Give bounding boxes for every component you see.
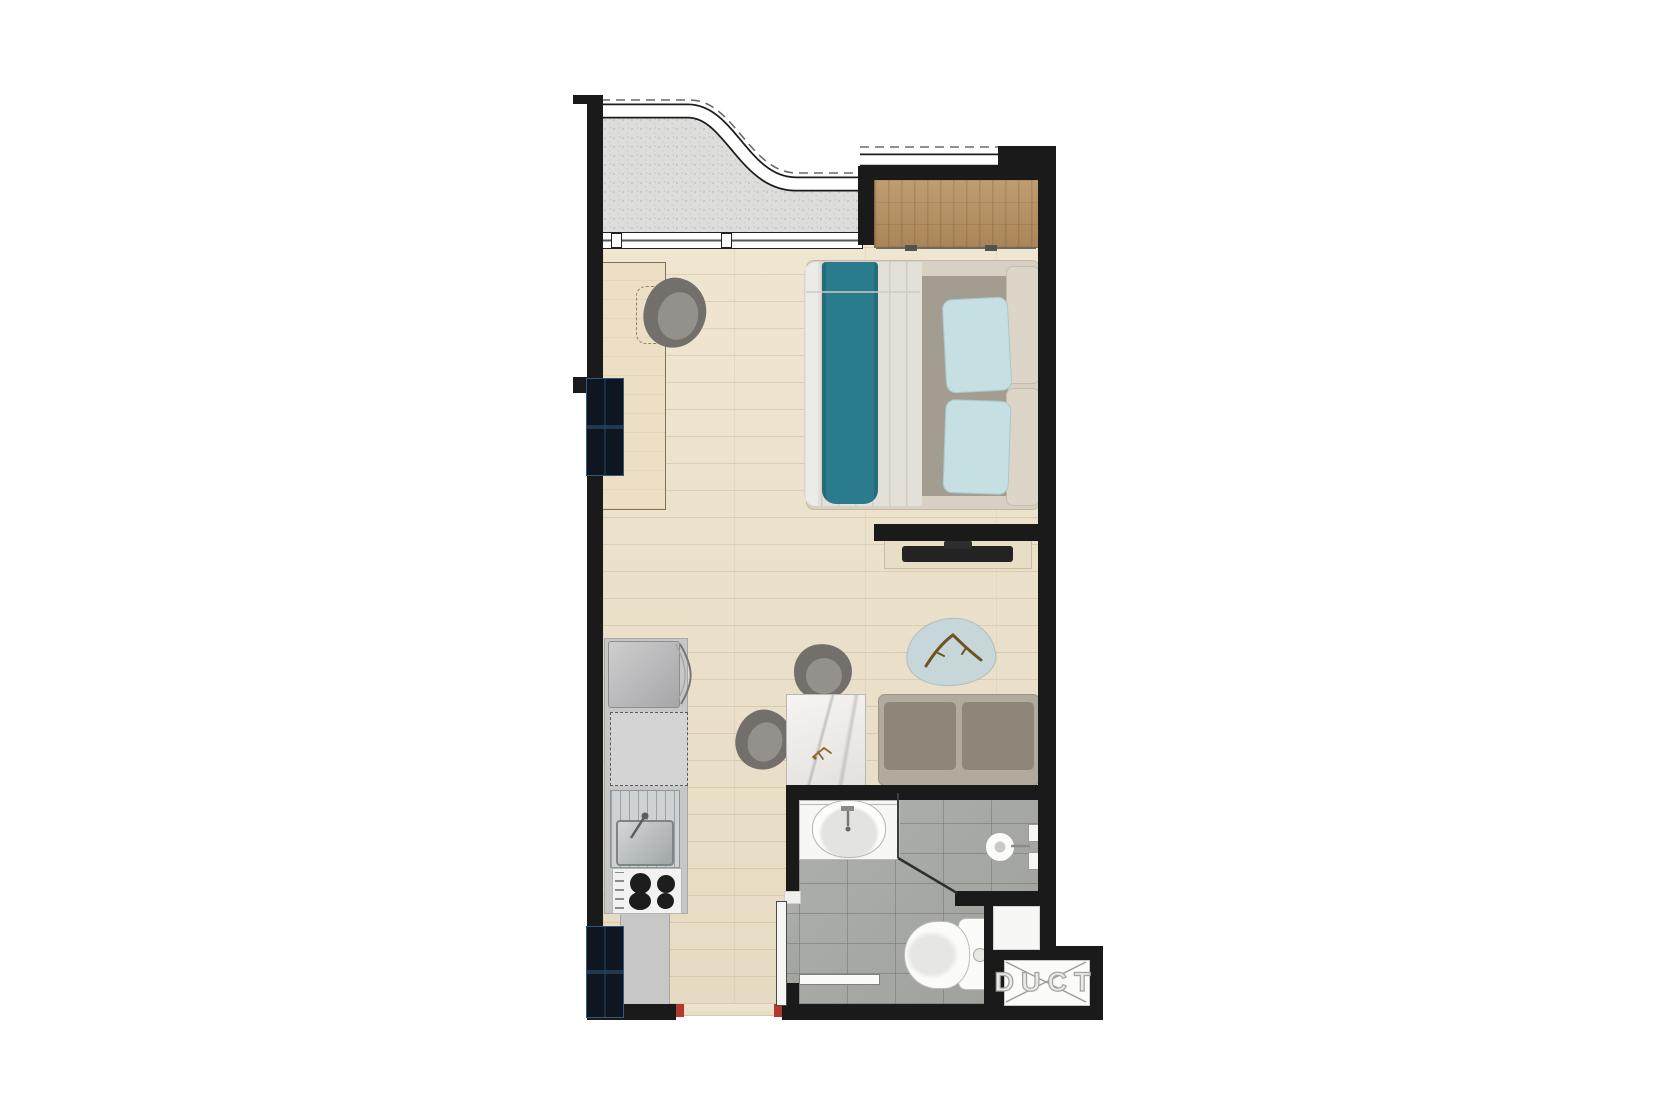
right-wall xyxy=(1038,166,1056,960)
balcony-door-handle xyxy=(611,233,622,248)
left-window-lower xyxy=(586,926,624,1018)
cooktop-controls xyxy=(615,872,624,909)
left-wall xyxy=(587,98,603,1020)
towel-bar xyxy=(799,974,880,985)
kitchen-sink-basin xyxy=(616,820,674,866)
sofa-cushion xyxy=(962,702,1034,770)
cooktop-burner xyxy=(629,892,651,910)
cooktop-burner xyxy=(630,873,651,894)
toilet-bowl xyxy=(904,921,970,989)
bathroom-top-wall xyxy=(786,785,1042,800)
floor-plan-canvas: DUCT xyxy=(0,0,1680,1120)
washbasin xyxy=(812,800,886,858)
bottom-wall-right xyxy=(782,1004,1103,1020)
balcony-graphics xyxy=(0,0,1680,1120)
bathroom-left-wall xyxy=(786,785,799,893)
cooktop-burner xyxy=(657,875,675,893)
kitchen-upper-cabinet xyxy=(610,712,688,786)
left-wall-top-cap xyxy=(573,95,603,104)
balcony-door-handle xyxy=(721,233,732,248)
wardrobe-handle xyxy=(905,245,917,251)
wardrobe-handle xyxy=(985,245,997,251)
kitchen-counter-lower xyxy=(620,912,670,1006)
bed-headboard-cushion xyxy=(1006,388,1040,506)
shower-stub-wall xyxy=(955,891,1042,906)
entry-door-leaf xyxy=(776,901,787,1006)
tv-partial-wall xyxy=(874,524,1040,541)
entry-door-marker-left xyxy=(676,1004,684,1017)
bed-teal-blanket xyxy=(822,262,878,504)
bathroom-niche xyxy=(993,906,1040,950)
exterior-ledge xyxy=(860,147,999,160)
dining-table xyxy=(786,694,866,788)
cooktop-burner xyxy=(657,893,674,909)
sofa-cushion xyxy=(884,702,956,770)
bed-pillow xyxy=(942,399,1011,495)
tv-mount xyxy=(944,541,972,549)
wardrobe-front-line xyxy=(876,247,1036,249)
niche-separator-wall xyxy=(984,906,993,1004)
shower-head xyxy=(985,832,1015,862)
left-window-upper xyxy=(586,378,624,476)
balcony-sliding-door xyxy=(601,232,863,249)
wardrobe xyxy=(874,178,1040,248)
balcony-divider-wall xyxy=(858,166,874,245)
duct-label: DUCT xyxy=(1004,960,1088,1004)
fridge xyxy=(608,641,680,708)
bed-pillow xyxy=(942,296,1013,393)
